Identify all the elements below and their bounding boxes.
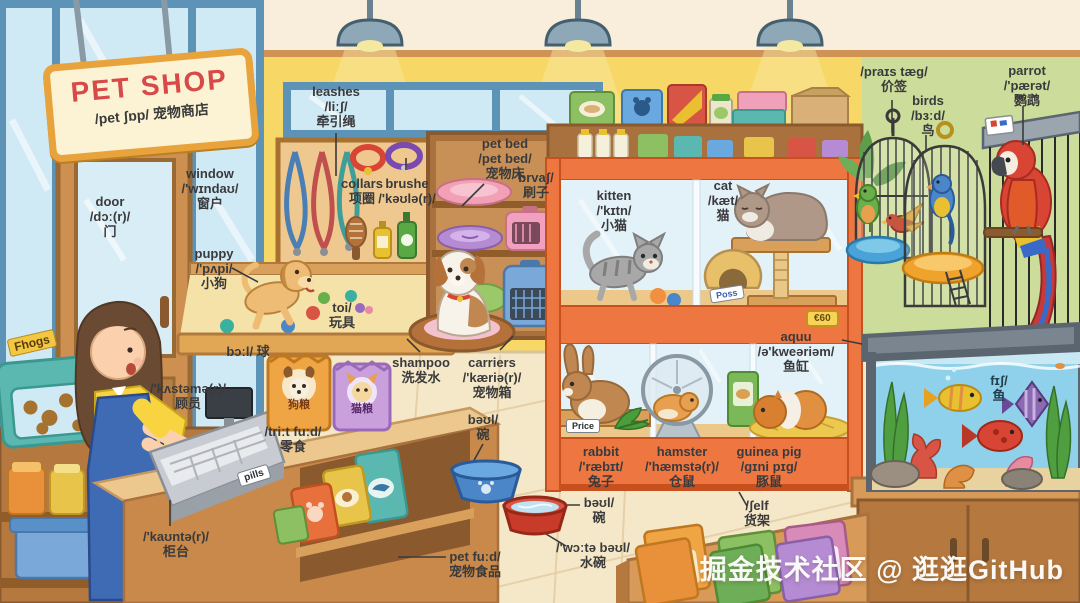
label-bowl-2: bəʊl/碗 <box>584 495 614 525</box>
label-treat-food: /triːt fuːd/零食 <box>264 424 321 454</box>
label-ball: bɔːl/ 球 <box>226 344 269 359</box>
cage-price-badge: €60 <box>806 310 839 327</box>
perch-icon <box>984 228 1042 237</box>
label-bowl: bəʊl/碗 <box>468 412 498 442</box>
label-pet-food: pet fuːd/宠物食品 <box>449 549 501 579</box>
rock-icon <box>1002 469 1042 489</box>
label-fish: fɪʃ/鱼 <box>990 373 1008 403</box>
label-aquarium: aquu/ə'kweəriəm/鱼缸 <box>758 329 835 374</box>
label-carriers: carriers/'kæriə(r)/宠物箱 <box>463 355 522 400</box>
label-water-bowl: /'wɔːtə bəʊl/水碗 <box>556 540 630 570</box>
dog-food-bag-label: 狗粮 <box>288 396 310 412</box>
label-shelf: /ʃelf货架 <box>744 498 770 528</box>
label-toy: toi/玩具 <box>329 300 355 330</box>
label-hamster: hamster/'hæmstə(r)/仓鼠 <box>645 444 719 489</box>
label-cat: cat/kæt/猫 <box>708 178 738 223</box>
label-customer: /'kʌstəmə(r)/顾员 <box>150 381 226 411</box>
label-counter: /'kaʊntə(r)/柜台 <box>143 529 209 559</box>
label-brush-collar: brushe/'kəʊlə(r)/ <box>378 176 435 206</box>
label-price-tag: /praɪs tæg/价签 <box>860 64 927 94</box>
pet-shop-sign: PET SHOP /pet ʃɒp/ 宠物商店 <box>42 47 260 163</box>
label-door: door/dɔː(r)/门 <box>90 194 130 239</box>
label-window: window/'wɪndaʊ/窗户 <box>182 166 239 211</box>
label-birds: birds/bɜːd/鸟 <box>911 93 945 138</box>
rock-icon <box>871 461 919 487</box>
fish-tank-icon <box>862 322 1080 492</box>
label-guinea-pig: guinea pig/gɪni pɪg/豚鼠 <box>737 444 802 489</box>
door-handle-icon <box>160 296 169 328</box>
label-collars: collars项圈 <box>341 176 383 206</box>
label-leashes: leashes/liːʃ/牵引绳 <box>312 84 360 129</box>
label-rabbit: rabbit/'ræbɪt/兔子 <box>579 444 623 489</box>
cage-price-sticker <box>985 115 1014 135</box>
label-kitten: kitten/'kɪtn/小猫 <box>596 188 631 233</box>
label-shampoo: shampoo洗发水 <box>392 355 450 385</box>
food-bag-icon <box>268 354 390 430</box>
pet-shop-poster: PET SHOP /pet ʃɒp/ 宠物商店 door/dɔː(r)/门 wi… <box>0 0 1080 603</box>
label-brush: brvaʃ/刷子 <box>518 170 553 200</box>
price-tag-small: Price <box>566 419 600 433</box>
label-parrot: parrot/'pærət/鹦鹉 <box>1004 63 1050 108</box>
cat-food-bag-label: 猫粮 <box>351 400 373 416</box>
label-puppy: puppy/'pʌpi/小狗 <box>195 246 234 291</box>
watermark: 掘金技术社区 @ 逛逛GitHub <box>700 548 1064 587</box>
toy-ball-icon <box>650 288 666 304</box>
